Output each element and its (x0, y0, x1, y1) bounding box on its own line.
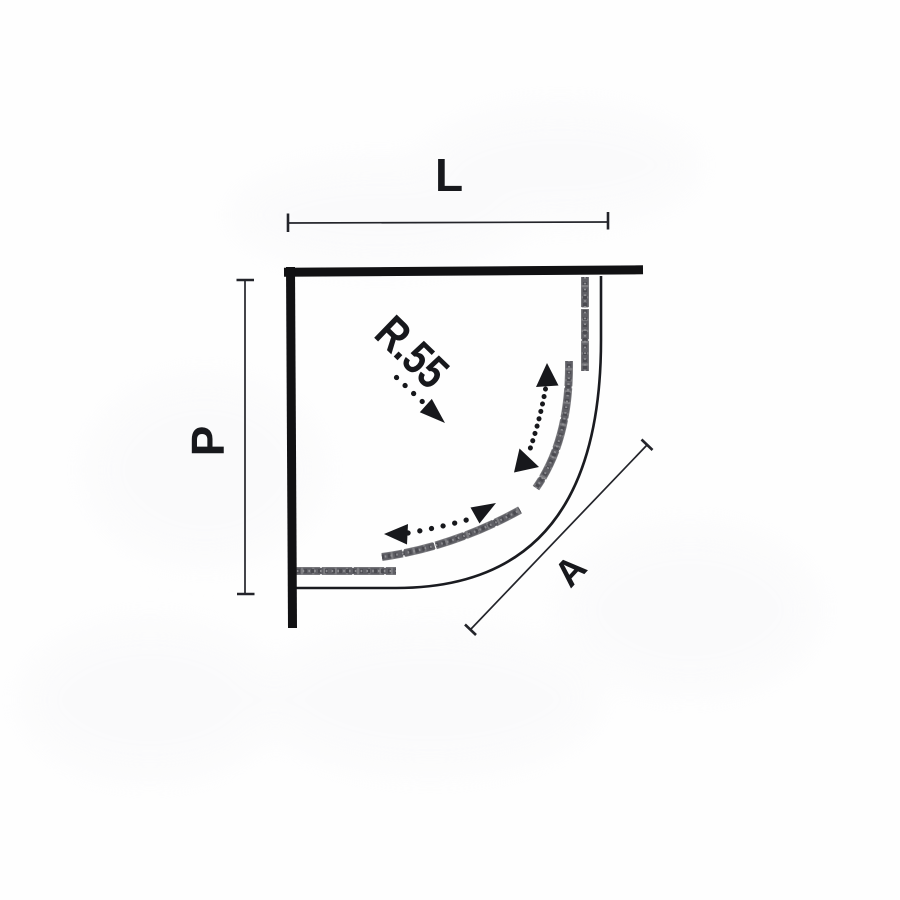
svg-text:P: P (182, 426, 234, 457)
svg-text:L: L (435, 149, 463, 201)
